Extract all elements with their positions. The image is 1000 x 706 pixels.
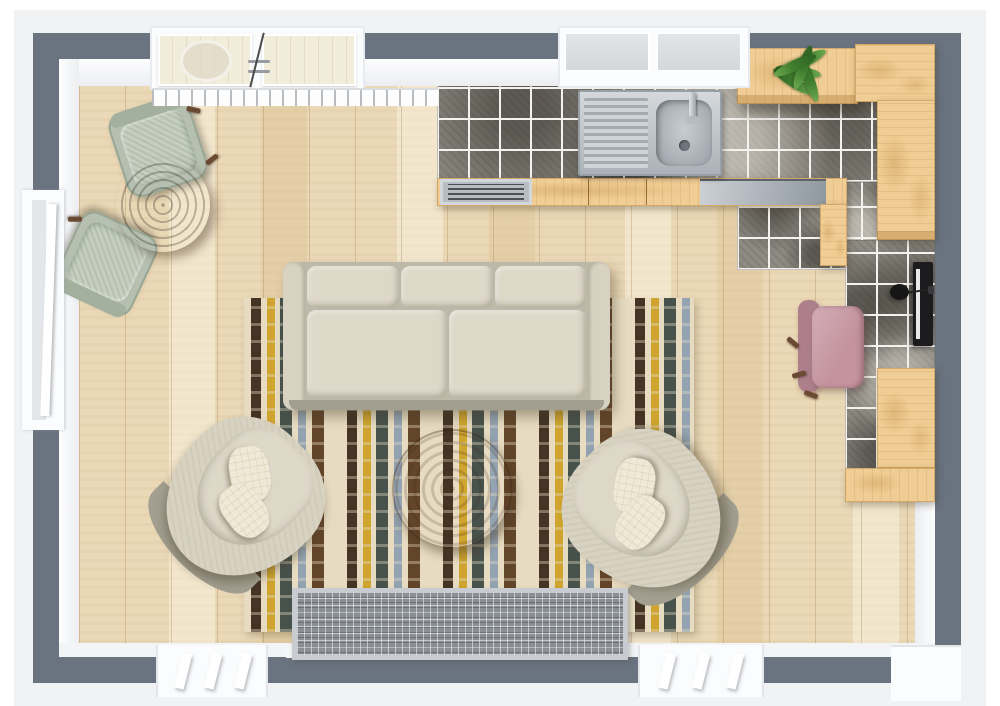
kitchen-window (558, 26, 750, 88)
sofa-back-cushion (401, 266, 493, 308)
window-mullion (692, 652, 710, 689)
window-mullion (204, 652, 222, 689)
door-glass-reflection (180, 40, 232, 82)
sofa-base (289, 400, 604, 410)
right-cabinet-upper (877, 100, 935, 240)
window-mullion (174, 652, 192, 689)
bottom-window-right (638, 645, 764, 697)
sofa-seat-cushion (307, 310, 447, 398)
right-cabinet-lower (877, 368, 935, 468)
door-handle (248, 60, 270, 63)
sofa-seat-cushion (449, 310, 586, 398)
window-mullion (658, 652, 676, 689)
sofa-back-cushion (495, 266, 586, 308)
desk-lamp-base (928, 286, 934, 294)
sink-drain (679, 140, 690, 151)
sink-drainboard (584, 98, 648, 168)
bottom-right-door (891, 645, 961, 701)
floor-plan (0, 0, 1000, 706)
window-mullion (726, 652, 744, 689)
patio-door-panel-left (158, 34, 252, 86)
desk-monitor (913, 262, 933, 346)
sofa (283, 262, 610, 410)
cabinet-front-lip (877, 231, 935, 240)
kitchen-sink (578, 90, 722, 176)
counter-corner-return (820, 204, 847, 266)
dining-table (116, 158, 210, 252)
sink-faucet-head (686, 116, 699, 124)
cabinet-door-seam (588, 179, 589, 205)
door-threshold (152, 88, 438, 106)
coffee-table (392, 429, 512, 549)
door-handle (248, 70, 270, 73)
sofa-back-cushion (307, 266, 399, 308)
cabinet-front-lip (737, 95, 858, 104)
desk-lamp (890, 284, 909, 300)
left-window (22, 190, 64, 430)
bottom-window-left (156, 645, 268, 697)
oven-vent-slats (448, 184, 524, 200)
window-mullion (234, 652, 252, 689)
sofa-arm-left (283, 262, 305, 410)
patio-door-panel-right (262, 34, 356, 86)
sink-basin (656, 100, 712, 166)
window-pane (564, 32, 650, 72)
chair-leg (68, 217, 82, 222)
cabinet-front-bottom (845, 468, 935, 502)
corner-cabinet (855, 44, 935, 102)
floor-vent (292, 588, 628, 660)
cabinet-door-seam (646, 179, 647, 205)
oven-front (440, 179, 532, 205)
window-pane (656, 32, 742, 72)
dishwasher-front (700, 179, 826, 205)
sofa-arm-right (588, 262, 610, 410)
wall-right (935, 33, 961, 683)
office-chair (812, 306, 864, 388)
monitor-screen (916, 269, 920, 339)
